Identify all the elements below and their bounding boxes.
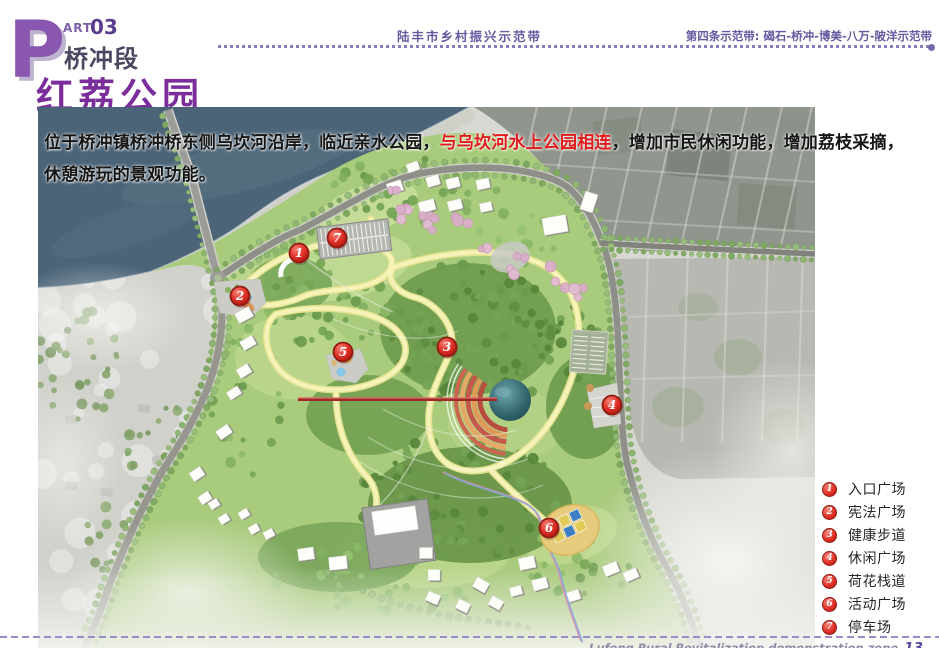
parking-lot-east [570,330,609,374]
legend-label: 宪法广场 [848,502,906,522]
legend-label: 荷花栈道 [848,571,906,591]
svg-text:4: 4 [608,398,616,412]
description: 位于桥冲镇桥冲桥东侧乌坎河沿岸，临近亲水公园，与乌坎河水上公园相连，增加市民休闲… [44,128,916,191]
right-banner: 第四条示范带: 碣石-桥冲-博美-八万-陂洋示范带 [686,28,932,44]
legend-marker-icon: 5 [822,574,837,589]
map-legend: 1入口广场2宪法广场3健康步道4休闲广场5荷花栈道6活动广场7停车场 [822,481,906,635]
legend-item-7: 7停车场 [822,619,906,635]
legend-item-1: 1入口广场 [822,481,906,497]
footer-credit: Lufeng Rural Revitalization demonstratio… [589,640,923,648]
legend-marker-icon: 6 [822,597,837,612]
footer-dashed-rule [0,636,939,638]
legend-marker-icon: 4 [822,551,837,566]
svg-text:3: 3 [443,340,451,354]
description-pre: 位于桥冲镇桥冲桥东侧乌坎河沿岸，临近亲水公园， [44,133,440,153]
svg-text:2: 2 [235,289,244,303]
legend-label: 停车场 [848,617,892,637]
legend-label: 活动广场 [848,594,906,614]
legend-item-3: 3健康步道 [822,527,906,543]
page-number: 13 [904,640,923,648]
svg-text:1: 1 [295,246,303,260]
description-highlight: 与乌坎河水上公园相连 [440,133,612,153]
rule-end-dot [928,44,935,51]
legend-marker-icon: 7 [822,620,837,635]
legend-label: 入口广场 [848,479,906,499]
legend-marker-icon: 3 [822,528,837,543]
legend-item-5: 5荷花栈道 [822,573,906,589]
legend-label: 健康步道 [848,525,906,545]
legend-marker-icon: 2 [822,505,837,520]
legend-marker-icon: 1 [822,482,837,497]
legend-item-2: 2宪法广场 [822,504,906,520]
svg-text:5: 5 [339,345,347,359]
footer-text: Lufeng Rural Revitalization demonstratio… [589,641,898,648]
legend-item-6: 6活动广场 [822,596,906,612]
slide: P ART 03 桥冲段 红荔公园 陆丰市乡村振兴示范带 第四条示范带: 碣石-… [0,0,939,648]
legend-label: 休闲广场 [848,548,906,568]
dotted-rule [218,45,929,48]
legend-item-4: 4休闲广场 [822,550,906,566]
svg-text:6: 6 [545,521,554,535]
svg-text:7: 7 [333,231,342,245]
